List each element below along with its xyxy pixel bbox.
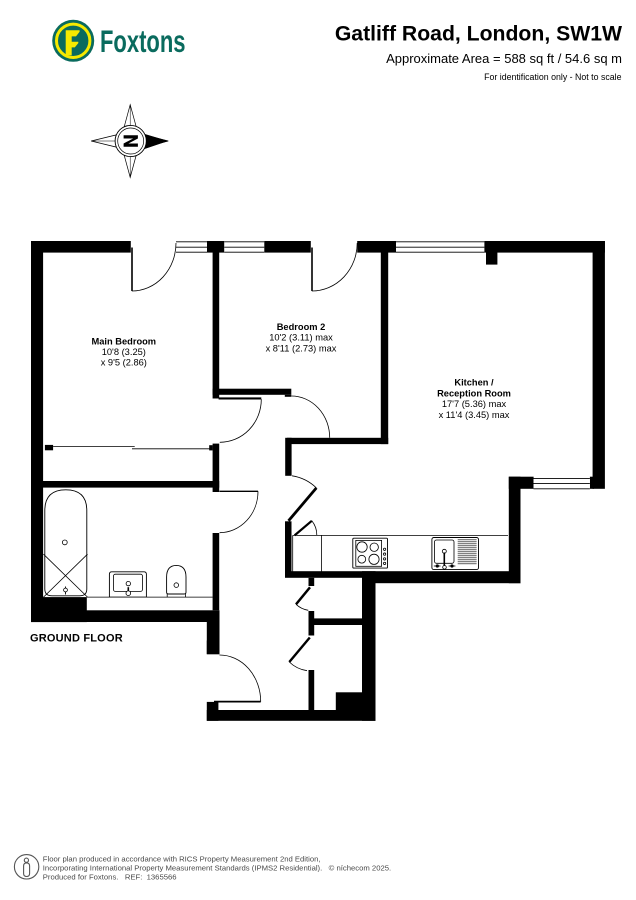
- svg-text:10'8 (3.25): 10'8 (3.25): [102, 347, 146, 357]
- svg-text:Kitchen /: Kitchen /: [454, 378, 494, 388]
- svg-text:Produced for Foxtons. REF:: Produced for Foxtons. REF: 1365566: [43, 872, 177, 881]
- svg-text:Floor plan produced in accorda: Floor plan produced in accordance with R…: [43, 854, 321, 863]
- svg-text:x 11'4 (3.45) max: x 11'4 (3.45) max: [439, 410, 510, 420]
- svg-text:x 8'11 (2.73) max: x 8'11 (2.73) max: [266, 343, 337, 353]
- svg-text:10'2 (3.11) max: 10'2 (3.11) max: [269, 333, 333, 343]
- svg-text:GROUND FLOOR: GROUND FLOOR: [30, 633, 123, 645]
- svg-text:Incorporating International Pr: Incorporating International Property Mea…: [43, 863, 391, 872]
- svg-text:Main Bedroom: Main Bedroom: [92, 337, 157, 347]
- svg-text:Foxtons: Foxtons: [100, 23, 186, 59]
- svg-text:For identification only - Not: For identification only - Not to scale: [484, 72, 621, 82]
- svg-text:Bedroom 2: Bedroom 2: [277, 322, 326, 332]
- svg-text:Gatliff Road, London, SW1W: Gatliff Road, London, SW1W: [335, 22, 622, 45]
- svg-text:17'7 (5.36) max: 17'7 (5.36) max: [442, 399, 507, 409]
- svg-text:Reception Room: Reception Room: [437, 388, 511, 398]
- svg-text:Approximate Area = 588 sq ft /: Approximate Area = 588 sq ft / 54.6 sq m: [386, 51, 622, 66]
- svg-text:x 9'5 (2.86): x 9'5 (2.86): [101, 358, 147, 368]
